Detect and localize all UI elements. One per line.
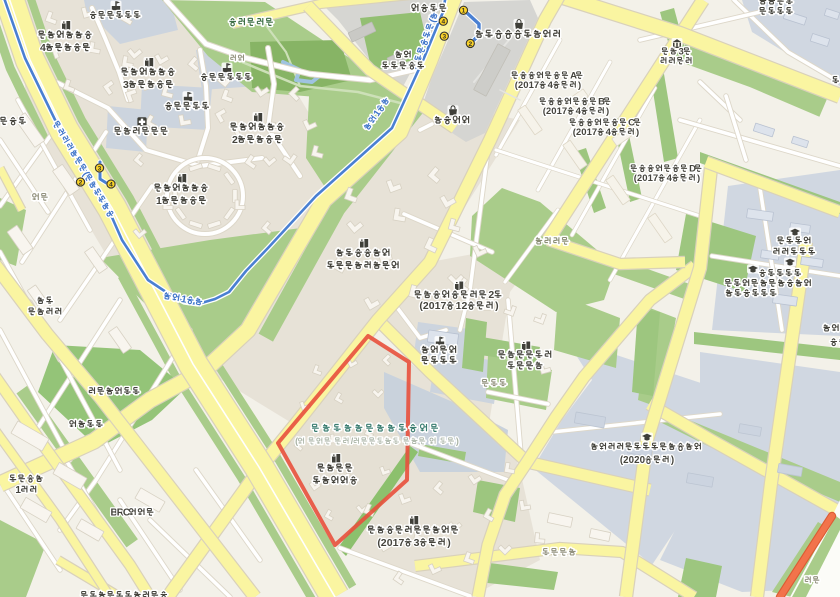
svg-text:7: 7 [534, 80, 539, 91]
svg-text:3: 3 [98, 165, 102, 172]
svg-text:(: ( [295, 436, 298, 446]
svg-text:2: 2 [468, 41, 472, 48]
svg-text:4: 4 [109, 181, 113, 188]
svg-text:): ) [495, 300, 499, 312]
svg-text:1: 1 [156, 195, 162, 207]
svg-text:4: 4 [40, 42, 46, 54]
svg-text:1: 1 [462, 8, 466, 15]
svg-text:): ) [456, 436, 459, 446]
svg-text:7: 7 [399, 537, 405, 549]
svg-text:3: 3 [414, 537, 420, 549]
svg-text:4: 4 [606, 127, 612, 138]
svg-text:7: 7 [562, 106, 567, 117]
svg-text:0: 0 [640, 455, 646, 466]
svg-text:4: 4 [441, 19, 445, 26]
svg-text:4: 4 [576, 106, 582, 117]
svg-text:): ) [636, 127, 639, 138]
svg-text:2: 2 [488, 289, 494, 301]
svg-text:7: 7 [653, 173, 658, 184]
svg-text:2: 2 [79, 179, 83, 186]
svg-text:3: 3 [123, 79, 129, 91]
svg-text:3: 3 [442, 34, 446, 41]
svg-text:): ) [447, 537, 451, 549]
svg-text:7: 7 [441, 300, 447, 312]
svg-text:7: 7 [592, 127, 597, 138]
svg-text:2: 2 [232, 134, 238, 146]
svg-text:): ) [606, 106, 609, 117]
svg-text:4: 4 [548, 80, 554, 91]
svg-text:C: C [123, 507, 130, 518]
svg-text:4: 4 [667, 173, 673, 184]
svg-text:): ) [578, 80, 581, 91]
svg-text:2: 2 [462, 300, 468, 312]
svg-text:): ) [671, 455, 674, 466]
svg-text:1: 1 [15, 485, 21, 496]
svg-text:): ) [697, 173, 700, 184]
